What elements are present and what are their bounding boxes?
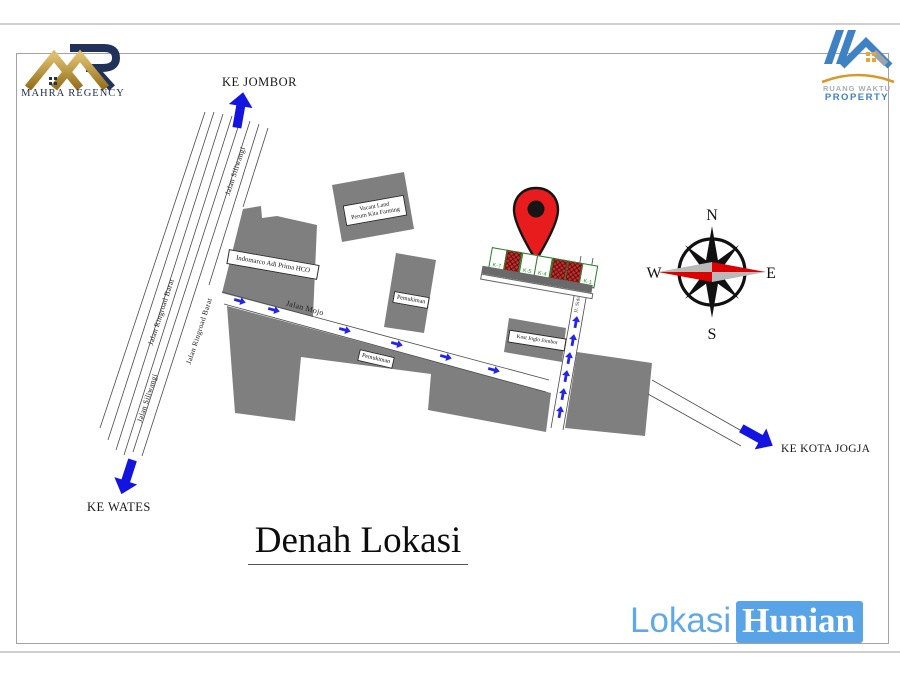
map-canvas: N S W E (0, 0, 900, 675)
page-title: Denah Lokasi (248, 519, 468, 565)
arrow-ke-jogja (735, 418, 778, 456)
watermark-hunian: Hunian (736, 601, 863, 643)
jogja-road-lines (648, 380, 747, 446)
watermark-lokasi: Lokasi (630, 601, 731, 640)
location-pin-icon (514, 188, 558, 260)
slide: N S W E (0, 0, 900, 675)
building-east-block (565, 352, 652, 436)
arrow-ke-wates (110, 456, 144, 498)
compass-rose: N S W E (646, 207, 775, 343)
ruang-waktu-line2: PROPERTY (816, 92, 898, 103)
compass-e: E (766, 265, 776, 282)
watermark: LokasiHunian (630, 601, 863, 641)
mahra-logo-text: MAHRA REGENCY (18, 88, 128, 99)
mahra-logo-icon (28, 48, 116, 88)
label-ke-wates: KE WATES (87, 500, 151, 515)
label-ke-jombor: KE JOMBOR (222, 75, 297, 90)
compass-n: N (706, 207, 718, 224)
ruang-waktu-logo-icon (822, 30, 894, 82)
compass-s: S (708, 326, 717, 343)
label-ke-kota-jogja: KE KOTA JOGJA (781, 443, 870, 455)
direction-arrows (110, 90, 779, 498)
compass-w: W (646, 265, 662, 282)
